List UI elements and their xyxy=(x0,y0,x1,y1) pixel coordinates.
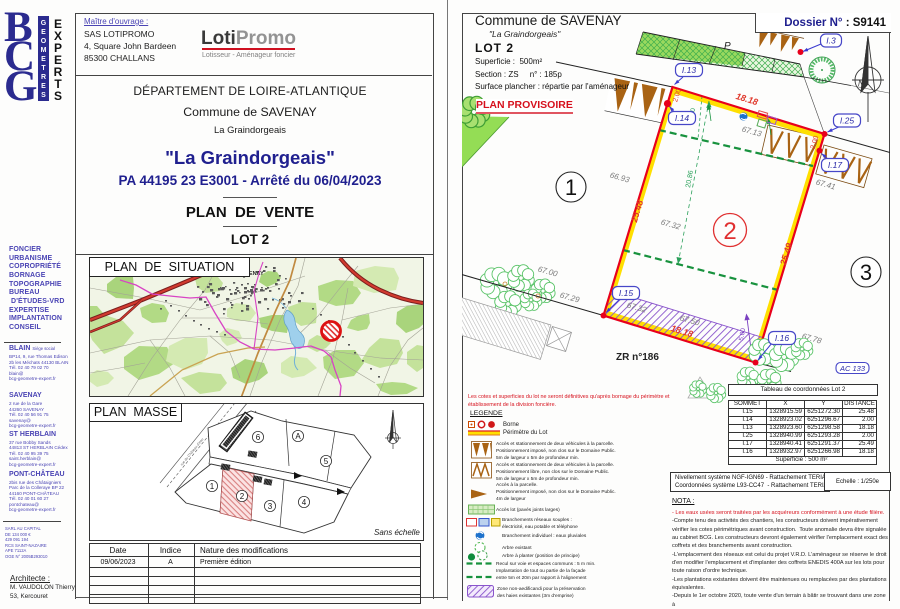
svg-text:G: G xyxy=(4,63,37,110)
svg-text:E: E xyxy=(41,56,46,63)
svg-text:M: M xyxy=(41,47,47,54)
svg-text:3: 3 xyxy=(268,502,273,511)
svg-text:67.32: 67.32 xyxy=(660,218,682,232)
svg-text:I.3: I.3 xyxy=(826,36,836,46)
svg-text:3: 3 xyxy=(860,260,872,285)
svg-text:I.17: I.17 xyxy=(828,160,842,170)
svg-text:25.48: 25.48 xyxy=(629,199,645,224)
svg-text:I.14: I.14 xyxy=(675,113,689,123)
svg-text:67.41: 67.41 xyxy=(815,178,837,192)
svg-text:6: 6 xyxy=(256,433,261,442)
svg-text:G: G xyxy=(41,20,47,27)
svg-text:ZR n°186: ZR n°186 xyxy=(616,352,659,363)
svg-text:66.93: 66.93 xyxy=(609,171,631,185)
svg-text:20.86: 20.86 xyxy=(685,170,695,189)
svg-text:S: S xyxy=(54,89,62,103)
svg-text:2: 2 xyxy=(240,492,245,501)
svg-text:S: S xyxy=(41,92,46,99)
svg-text:2: 2 xyxy=(723,218,736,245)
svg-text:O: O xyxy=(41,38,47,45)
svg-text:I.15: I.15 xyxy=(619,288,633,298)
svg-text:R: R xyxy=(41,74,46,81)
svg-text:N: N xyxy=(858,79,864,88)
svg-text:I.13: I.13 xyxy=(682,65,696,75)
svg-text:5: 5 xyxy=(324,457,329,466)
svg-text:4: 4 xyxy=(302,498,307,507)
svg-text:Sans échelle: Sans échelle xyxy=(374,528,420,537)
svg-text:T: T xyxy=(41,65,46,72)
svg-text:I.25: I.25 xyxy=(840,116,854,126)
svg-text:A: A xyxy=(295,432,301,441)
svg-text:I.16: I.16 xyxy=(775,333,789,343)
svg-text:P: P xyxy=(724,41,731,52)
svg-text:67.29: 67.29 xyxy=(559,291,581,305)
svg-text:1: 1 xyxy=(565,175,577,200)
svg-text:AC 133: AC 133 xyxy=(839,364,866,373)
svg-text:1: 1 xyxy=(210,482,215,491)
svg-text:25.49: 25.49 xyxy=(778,242,794,267)
svg-text:18.18: 18.18 xyxy=(735,91,759,107)
svg-text:67.00: 67.00 xyxy=(537,265,559,279)
svg-text:E: E xyxy=(41,83,46,90)
svg-text:E: E xyxy=(41,29,46,36)
